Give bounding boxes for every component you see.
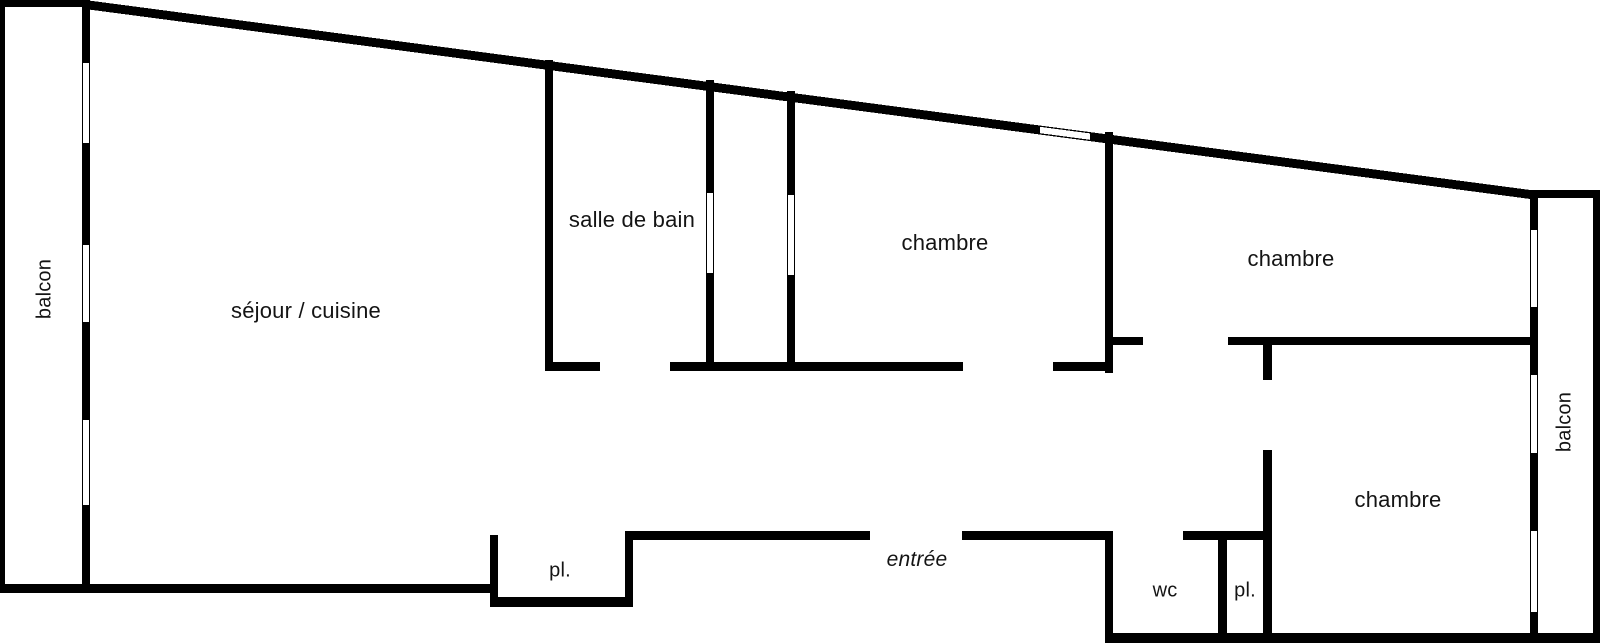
bottom-exterior-left-wall bbox=[0, 584, 490, 593]
bedroom1-right-wall bbox=[1105, 132, 1113, 373]
hall-top-wall-a3-wall bbox=[1053, 362, 1113, 371]
bedroom3-left-stub-wall bbox=[1263, 345, 1272, 380]
entry-bottom-left-wall bbox=[633, 531, 870, 540]
balcony-right-top-wall bbox=[1530, 190, 1600, 198]
closet1-right-wall bbox=[625, 531, 633, 607]
bedroom1-top-window-window bbox=[1040, 127, 1090, 140]
balcony-left-window-1-window bbox=[83, 63, 89, 143]
wc-pl-divider-wall bbox=[1218, 540, 1227, 643]
shaft-left-opening-window bbox=[707, 193, 713, 273]
bathroom-left-wall bbox=[545, 60, 553, 362]
entry-bottom-right-wall bbox=[962, 531, 1105, 540]
top-exterior-sloped-wall bbox=[85, 0, 1538, 200]
balcony-left-top-wall bbox=[0, 0, 88, 7]
balcony-right-outer-wall bbox=[1593, 190, 1600, 643]
floorplan-page: balconséjour / cuisinesalle de bainchamb… bbox=[0, 0, 1600, 643]
floorplan-canvas bbox=[0, 0, 1600, 643]
closet1-bottom-wall bbox=[490, 597, 633, 607]
wc-left-wall bbox=[1105, 531, 1113, 643]
closet1-left-wall bbox=[490, 535, 498, 607]
balcony-right-window-3-window bbox=[1531, 531, 1537, 612]
balcony-left-window-3-window bbox=[83, 420, 89, 505]
balcony-left-outer-wall bbox=[0, 0, 5, 592]
bedroom2-left-stub-wall bbox=[1113, 337, 1143, 345]
shaft-right-opening-window bbox=[788, 195, 794, 275]
balcony-right-window-1-window bbox=[1531, 230, 1537, 307]
balcony-left-window-2-window bbox=[83, 245, 89, 322]
wc-pl-top-wall bbox=[1183, 531, 1272, 540]
walls-group bbox=[0, 0, 1600, 643]
balcony-right-window-2-window bbox=[1531, 375, 1537, 453]
bottom-exterior-right-wall bbox=[1105, 633, 1600, 643]
bedroom3-left-lower-wall bbox=[1263, 450, 1272, 638]
bedroom2-bottom-wall bbox=[1228, 337, 1538, 345]
hall-top-wall-a1-wall bbox=[545, 362, 600, 371]
